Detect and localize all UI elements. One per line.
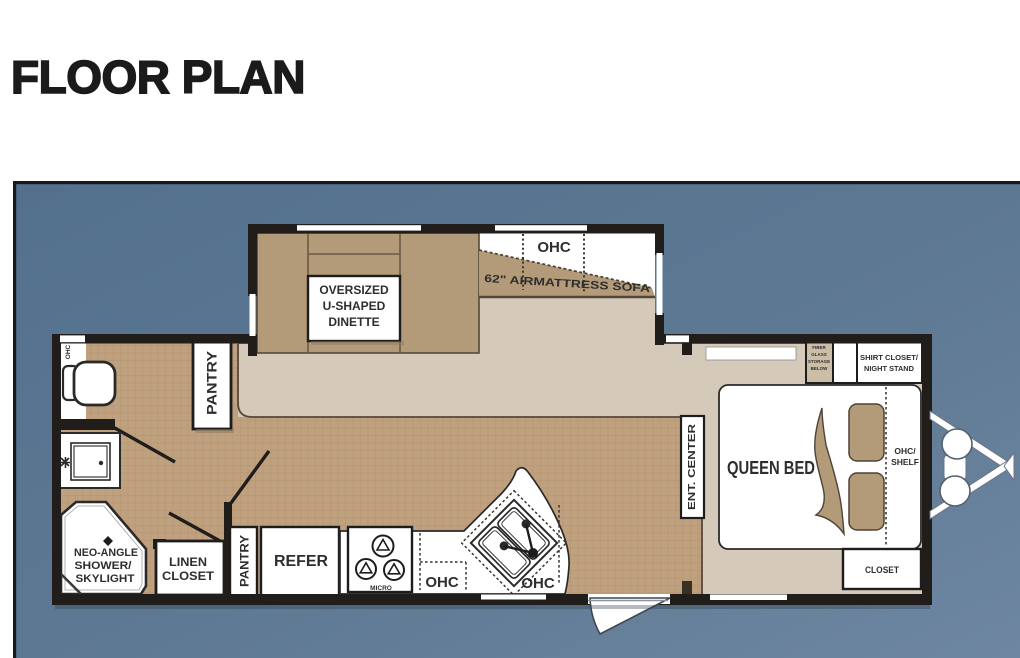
svg-text:OHC: OHC xyxy=(521,575,555,592)
svg-text:STORAGE: STORAGE xyxy=(808,359,830,364)
svg-text:SKYLIGHT: SKYLIGHT xyxy=(76,573,135,585)
svg-text:OVERSIZED: OVERSIZED xyxy=(319,283,389,297)
svg-text:ENT. CENTER: ENT. CENTER xyxy=(686,423,698,510)
svg-text:OHC: OHC xyxy=(65,344,72,359)
svg-text:PANTRY: PANTRY xyxy=(238,535,252,587)
svg-text:OHC: OHC xyxy=(537,239,571,256)
svg-text:DINETTE: DINETTE xyxy=(328,315,379,329)
svg-text:GLASS: GLASS xyxy=(811,352,827,357)
svg-text:CLOSET: CLOSET xyxy=(865,565,899,576)
svg-text:NEO-ANGLE: NEO-ANGLE xyxy=(74,547,138,559)
svg-text:REFER: REFER xyxy=(274,553,328,570)
svg-text:OHC/: OHC/ xyxy=(894,446,916,456)
svg-text:OHC: OHC xyxy=(425,574,459,591)
svg-text:QUEEN BED: QUEEN BED xyxy=(727,458,815,478)
svg-text:SHIRT CLOSET/: SHIRT CLOSET/ xyxy=(860,353,919,362)
svg-text:SHELF: SHELF xyxy=(891,457,919,467)
svg-text:NIGHT STAND: NIGHT STAND xyxy=(864,364,915,373)
svg-text:FIBER: FIBER xyxy=(812,345,826,350)
svg-text:LINEN: LINEN xyxy=(169,555,207,569)
svg-text:PANTRY: PANTRY xyxy=(205,351,220,415)
svg-text:U-SHAPED: U-SHAPED xyxy=(323,299,386,313)
svg-text:BELOW: BELOW xyxy=(811,366,829,371)
svg-text:MICRO: MICRO xyxy=(370,585,392,592)
svg-text:CLOSET: CLOSET xyxy=(162,569,215,583)
svg-text:SHOWER/: SHOWER/ xyxy=(75,560,132,572)
